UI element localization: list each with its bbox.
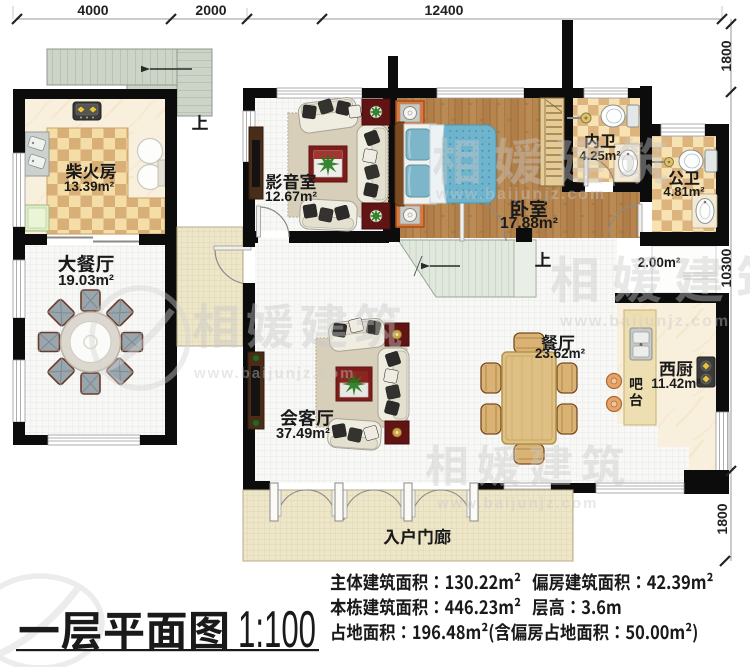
svg-text:37.49m²: 37.49m² [276,426,330,442]
svg-text:13.39m²: 13.39m² [64,179,115,194]
svg-text:19.03m²: 19.03m² [58,272,114,289]
svg-text:4000: 4000 [77,2,108,18]
svg-text:www.baijunjz.com: www.baijunjz.com [193,365,355,382]
svg-text:2000: 2000 [195,2,226,18]
svg-text:1800: 1800 [714,503,730,534]
svg-text:12400: 12400 [425,2,464,18]
svg-text:www.baijunjz.com: www.baijunjz.com [435,186,606,203]
svg-text:12.67m²: 12.67m² [265,188,317,204]
svg-text:www.baijunjz.com: www.baijunjz.com [436,495,598,512]
svg-text:www.baijunjz.com: www.baijunjz.com [559,313,730,330]
svg-text:1800: 1800 [718,40,734,71]
svg-text:4.81m²: 4.81m² [663,184,705,199]
svg-text:11.42m²: 11.42m² [651,376,701,391]
svg-text:23.62m²: 23.62m² [535,346,586,361]
svg-text:17.88m²: 17.88m² [500,215,558,232]
svg-text:10300: 10300 [718,248,734,287]
